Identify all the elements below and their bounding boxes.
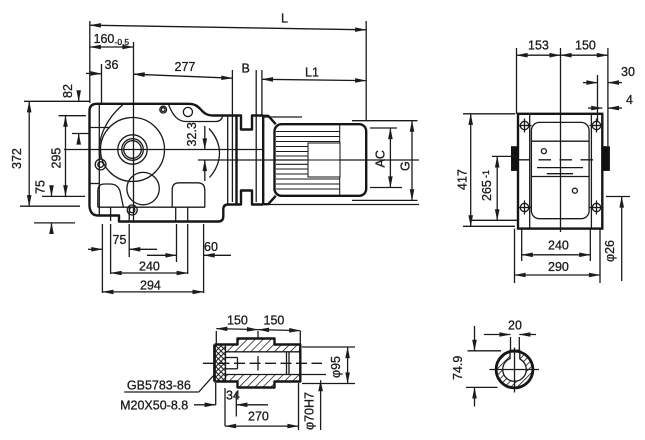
- svg-text:75: 75: [34, 180, 48, 194]
- svg-text:150: 150: [227, 314, 248, 328]
- svg-text:82: 82: [61, 84, 75, 98]
- svg-text:265: 265: [480, 180, 494, 201]
- svg-text:L1: L1: [305, 66, 319, 80]
- svg-text:75: 75: [113, 233, 127, 247]
- svg-text:372: 372: [10, 148, 24, 169]
- svg-text:B: B: [242, 62, 250, 76]
- svg-text:φ70H7: φ70H7: [303, 392, 317, 430]
- svg-text:G: G: [399, 161, 413, 171]
- svg-text:φ26: φ26: [603, 240, 617, 262]
- svg-text:153: 153: [528, 38, 549, 52]
- svg-text:294: 294: [140, 279, 161, 293]
- svg-text:270: 270: [248, 410, 269, 424]
- svg-text:34: 34: [226, 389, 240, 403]
- svg-text:φ95: φ95: [329, 356, 343, 378]
- svg-text:36: 36: [105, 58, 119, 72]
- svg-text:160: 160: [94, 32, 115, 46]
- svg-text:150: 150: [264, 314, 285, 328]
- svg-text:-0.5: -0.5: [115, 37, 130, 47]
- svg-text:295: 295: [50, 148, 64, 169]
- svg-text:L: L: [281, 12, 288, 26]
- svg-text:30: 30: [621, 65, 635, 79]
- svg-text:4: 4: [626, 93, 633, 107]
- svg-text:74.9: 74.9: [451, 356, 465, 380]
- svg-text:32.3: 32.3: [185, 122, 199, 146]
- svg-text:M20X50-8.8: M20X50-8.8: [120, 399, 188, 413]
- svg-text:417: 417: [456, 169, 470, 190]
- svg-text:150: 150: [575, 38, 596, 52]
- svg-text:60: 60: [204, 240, 218, 254]
- svg-text:GB5783-86: GB5783-86: [127, 378, 191, 392]
- svg-text:AC: AC: [374, 150, 388, 167]
- svg-text:-1: -1: [481, 170, 491, 178]
- svg-text:277: 277: [175, 60, 196, 74]
- svg-text:290: 290: [548, 260, 569, 274]
- svg-text:240: 240: [548, 238, 569, 252]
- svg-text:20: 20: [508, 319, 522, 333]
- svg-text:240: 240: [139, 260, 160, 274]
